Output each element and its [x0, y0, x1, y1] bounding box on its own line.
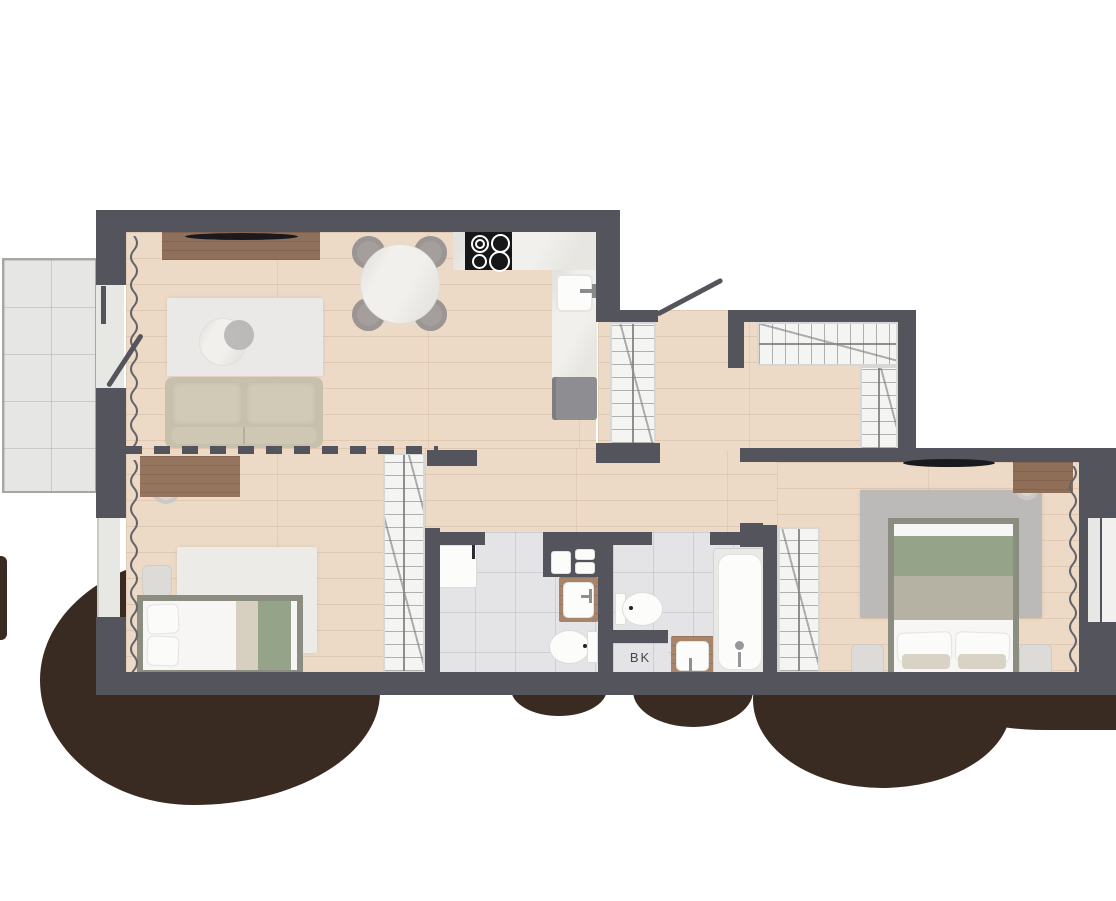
wall-entry-pillar — [728, 310, 744, 368]
sofa-cushion-left — [172, 382, 242, 425]
wall-hall-right — [898, 310, 916, 450]
cooktop — [465, 232, 512, 270]
toilet-flush-dot — [629, 606, 633, 610]
bedroom-2-desk — [1013, 462, 1073, 493]
burner-icon — [489, 251, 510, 272]
sink-faucet-icon — [580, 289, 594, 293]
bed-blanket-green — [258, 601, 291, 670]
sofa-seam — [243, 427, 245, 444]
bedroom-2-window — [1088, 518, 1100, 622]
sofa — [165, 377, 323, 448]
bedroom-1-wardrobe — [383, 453, 425, 673]
washing-machine — [437, 543, 477, 588]
accent-pillow — [902, 654, 950, 669]
living-room-tv — [185, 233, 298, 240]
wall-shaft-stub — [613, 630, 668, 643]
bathtub-faucet-icon — [735, 641, 744, 650]
bathtub-faucet-icon — [738, 652, 741, 667]
burner-inner-icon — [475, 239, 485, 249]
wall-left-upper — [96, 210, 126, 285]
bedroom-1-curtain-icon — [127, 460, 141, 674]
kitchen-sink — [556, 274, 593, 312]
wall-left-middle — [96, 388, 126, 518]
niche-dryer-bottom — [575, 562, 595, 574]
wall-hall-top — [744, 310, 916, 322]
bathroom-1-toilet-tank — [587, 631, 598, 663]
shaft-label: BK — [613, 643, 668, 673]
sofa-cushion-right — [246, 382, 316, 425]
wall-bathroom-1-left — [425, 528, 440, 673]
niche-dryer-top — [575, 549, 595, 560]
wall-corridor-pillar — [596, 443, 660, 463]
washing-machine-detail — [472, 545, 475, 559]
wall-hall-stub — [596, 310, 658, 322]
coffee-table-tray — [224, 320, 254, 350]
bed-blanket-green — [894, 536, 1013, 576]
wall-bedroom-2-left — [763, 525, 777, 680]
hall-wardrobe-kitchen-side — [610, 322, 656, 445]
pillow — [146, 603, 180, 635]
bedroom-2-bed — [888, 518, 1019, 678]
bathroom-2-basin — [676, 641, 709, 671]
bedroom-2-window-outer — [1102, 518, 1116, 622]
dashed-partition — [126, 446, 438, 454]
refrigerator — [552, 377, 597, 420]
hall-corner-wardrobe-horizontal — [757, 322, 898, 366]
bedroom-1-nightstand — [142, 565, 172, 597]
floor-plan: BK — [0, 0, 1116, 901]
vanity-faucet-icon — [581, 595, 592, 598]
bathroom-2-toilet-bowl — [622, 592, 663, 626]
wall-bathroom-2-top-left — [608, 532, 652, 545]
bedroom-2-curtain-icon — [1066, 466, 1080, 688]
wall-top — [96, 210, 620, 232]
bedroom-1-window — [97, 518, 120, 617]
wall-kitchen-right — [596, 210, 620, 312]
bed-blanket-beige — [236, 601, 258, 670]
balcony-floor — [2, 258, 97, 493]
bed-duvet — [894, 576, 1013, 620]
burner-icon — [472, 254, 487, 269]
bedroom-1-desk — [140, 456, 240, 497]
hall-corner-wardrobe-vertical — [860, 366, 898, 450]
wall-bath-divider — [598, 532, 613, 673]
bedroom-2-wardrobe — [778, 527, 820, 673]
bedroom-1-bed — [137, 595, 303, 676]
wall-bottom — [96, 672, 1112, 695]
dining-table — [360, 244, 440, 324]
tree-shadow-left-edge — [0, 556, 7, 640]
bedroom-2-tv — [903, 459, 995, 467]
balcony-door-frame — [101, 286, 106, 324]
wall-bathroom-2-top-right — [710, 532, 767, 545]
vanity-faucet-icon — [689, 658, 692, 671]
toilet-flush-dot — [583, 644, 587, 648]
accent-pillow — [958, 654, 1006, 669]
niche-washer — [551, 551, 571, 574]
wall-bathroom-1-top — [435, 532, 485, 545]
pillow — [146, 635, 179, 666]
